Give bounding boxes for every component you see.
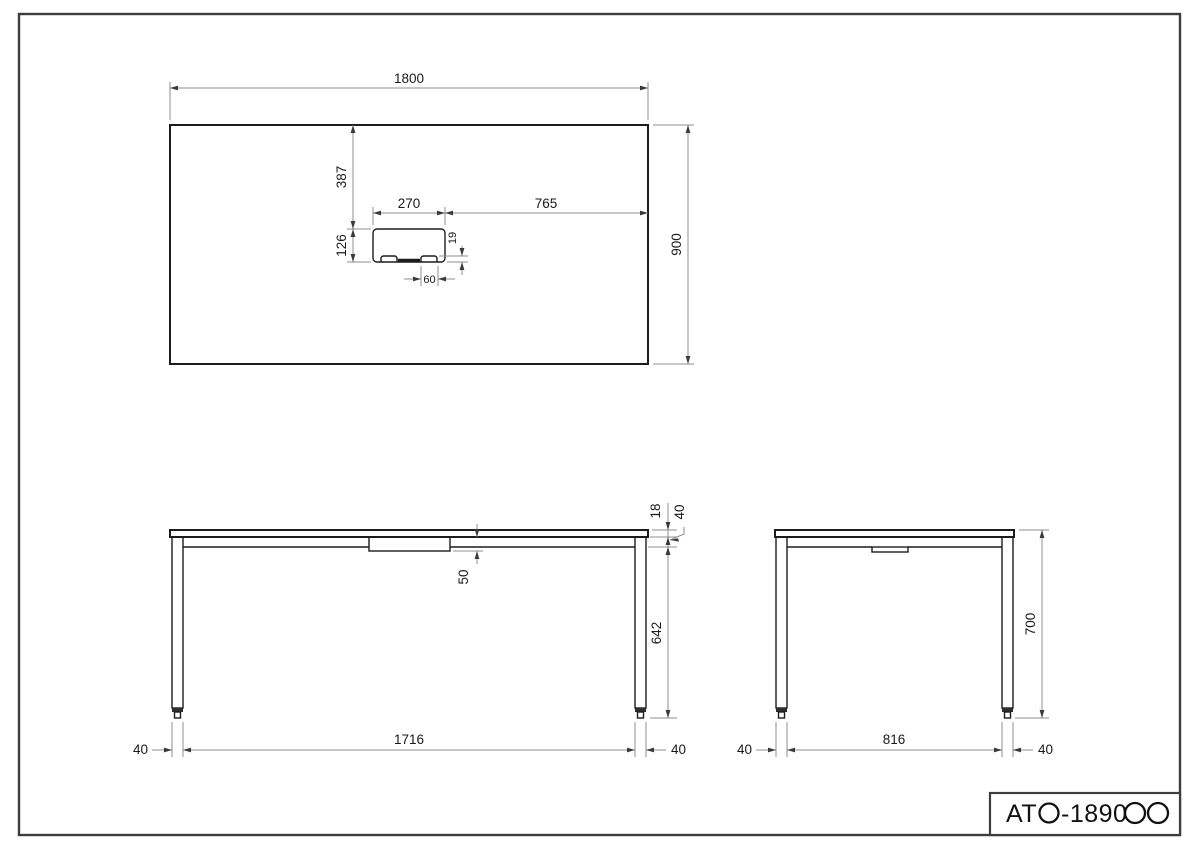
- dim-label-leg-width-right: 40: [671, 742, 686, 757]
- dim-label-grommet-offset-top: 387: [334, 166, 349, 189]
- tabletop-outline: [170, 125, 648, 364]
- dim-arrow: [670, 538, 679, 541]
- drawing-sheet: 1800 900 387 126 270 765 19: [0, 0, 1200, 850]
- leg-left: [776, 537, 787, 708]
- dim-arrow: [666, 710, 671, 718]
- leg-left: [172, 537, 183, 708]
- side-view: 700 816 40 40: [737, 530, 1053, 757]
- dim-arrow: [686, 125, 691, 133]
- dim-arrow: [438, 277, 446, 282]
- product-code-mid: -1890: [1061, 800, 1127, 828]
- cable-tray-front: [369, 537, 450, 551]
- dim-arrow: [1040, 710, 1045, 718]
- dim-arrow: [666, 547, 671, 555]
- plan-view: 1800 900 387 126 270 765 19: [170, 71, 694, 364]
- dim-arrow: [627, 748, 635, 753]
- product-code-prefix: AT: [1006, 800, 1037, 828]
- dim-arrow: [351, 254, 356, 262]
- dim-arrow: [351, 125, 356, 133]
- dim-arrow: [373, 211, 381, 216]
- dim-label-leg-span: 1716: [394, 732, 424, 747]
- dim-arrow: [460, 262, 465, 270]
- dim-arrow: [787, 748, 795, 753]
- cable-tray-side: [872, 547, 908, 552]
- foot-left: [175, 712, 181, 718]
- dim-arrow: [460, 248, 465, 256]
- dim-label-flap-height: 19: [447, 232, 459, 244]
- dim-label-leg-span: 816: [883, 732, 906, 747]
- dim-label-top-thickness: 18: [648, 503, 663, 518]
- dim-arrow: [475, 529, 480, 537]
- foot-right: [638, 712, 644, 718]
- dim-label-tray-drop: 50: [456, 569, 471, 584]
- grommet-flap-right: [421, 256, 437, 262]
- dim-arrow: [994, 748, 1002, 753]
- dim-arrow: [1040, 530, 1045, 538]
- dim-arrow: [164, 748, 172, 753]
- dim-arrow: [640, 211, 648, 216]
- dim-label-overall-height: 700: [1023, 613, 1038, 636]
- dim-label-leg-width-left: 40: [737, 742, 752, 757]
- dim-arrow: [183, 748, 191, 753]
- grommet-flap-left: [381, 256, 397, 262]
- dim-label-leg-height: 642: [649, 622, 664, 645]
- dim-arrow: [666, 537, 671, 545]
- front-view: 50 18 40 642 1716 40 40: [133, 503, 687, 757]
- dim-arrow: [646, 748, 654, 753]
- leader-line: [670, 527, 684, 540]
- dim-arrow: [170, 86, 178, 91]
- dim-arrow: [445, 211, 453, 216]
- foot-left: [779, 712, 785, 718]
- dim-label-overall-depth: 900: [669, 233, 684, 256]
- dim-arrow: [437, 211, 445, 216]
- dim-label-grommet-offset-right: 765: [535, 196, 558, 211]
- dim-arrow: [686, 356, 691, 364]
- dim-label-leg-width-right: 40: [1038, 742, 1053, 757]
- tabletop-edge: [170, 530, 648, 537]
- leg-right: [1002, 537, 1013, 708]
- foot-right: [1005, 712, 1011, 718]
- dim-label-grommet-width: 270: [398, 196, 421, 211]
- dim-label-overall-width: 1800: [394, 71, 424, 86]
- dim-arrow: [640, 86, 648, 91]
- dim-arrow: [413, 277, 421, 282]
- technical-drawing: 1800 900 387 126 270 765 19: [0, 0, 1200, 850]
- grommet-cutout: [373, 229, 445, 262]
- dim-arrow: [351, 229, 356, 237]
- tabletop-edge-side: [775, 530, 1014, 537]
- dim-label-leg-width-left: 40: [133, 742, 148, 757]
- dim-arrow: [1013, 748, 1021, 753]
- dim-arrow: [351, 221, 356, 229]
- dim-label-grommet-depth: 126: [334, 234, 349, 257]
- dim-label-frame-height: 40: [672, 504, 687, 519]
- title-block: AT -1890: [990, 793, 1180, 835]
- dim-arrow: [475, 551, 480, 559]
- dim-label-flap-width: 60: [423, 274, 435, 286]
- leg-right: [635, 537, 646, 708]
- dim-arrow: [666, 522, 671, 530]
- dim-arrow: [768, 748, 776, 753]
